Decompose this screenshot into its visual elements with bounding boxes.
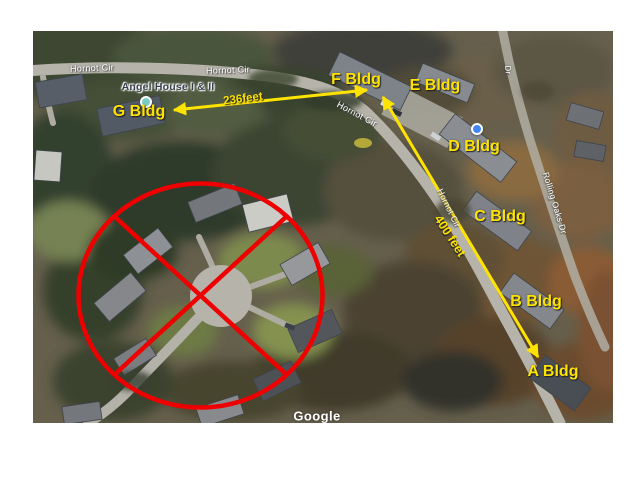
- document-page: Hornot Cir Hornot Cir Hornot Cir Hornot …: [0, 0, 640, 480]
- distance-arrow-f-to-a: [383, 97, 538, 357]
- blue-location-dot-icon: [471, 123, 483, 135]
- teal-poi-dot-icon: [140, 96, 152, 108]
- satellite-map-image: Hornot Cir Hornot Cir Hornot Cir Hornot …: [33, 31, 613, 423]
- annotation-overlay: [33, 31, 613, 423]
- prohibition-symbol: [79, 184, 323, 408]
- distance-arrow-g-to-f: [174, 90, 367, 110]
